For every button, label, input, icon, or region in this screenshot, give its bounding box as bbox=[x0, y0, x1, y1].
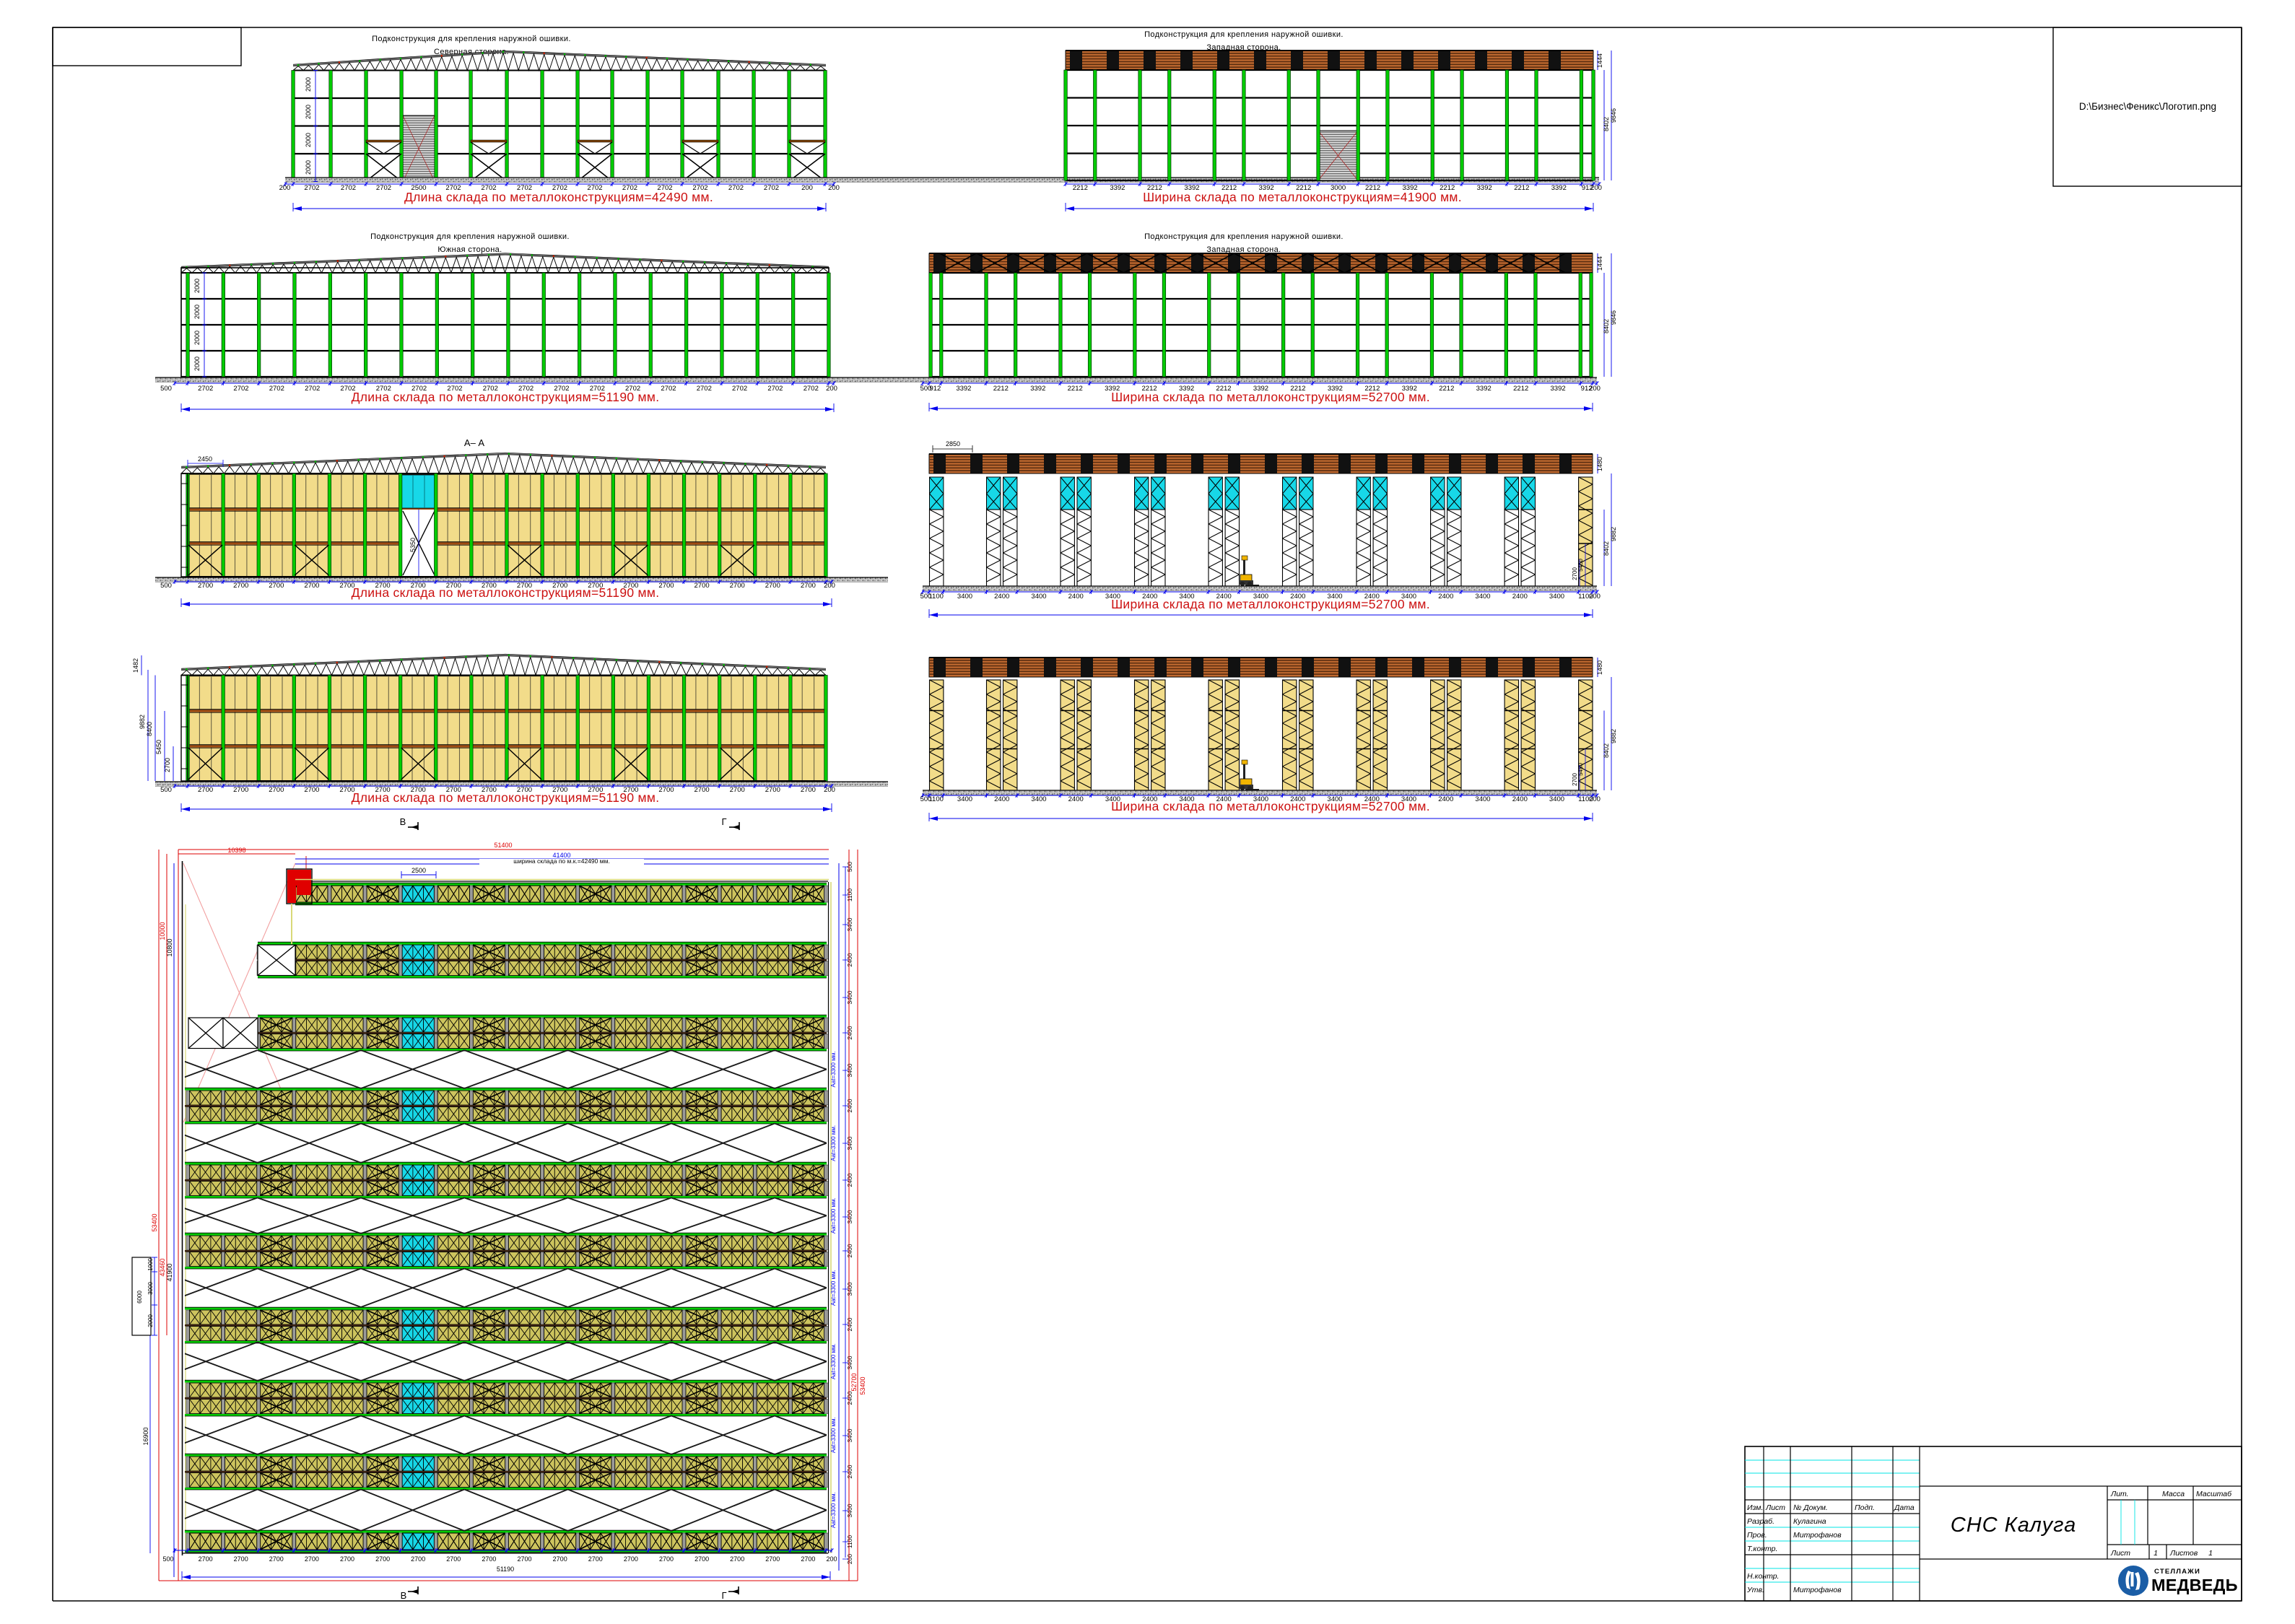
svg-text:200: 200 bbox=[828, 184, 840, 192]
svg-text:Подконструкция для крепления: Подконструкция для крепления наружной ош… bbox=[1144, 30, 1344, 39]
svg-text:2700: 2700 bbox=[199, 1555, 213, 1563]
svg-text:2700: 2700 bbox=[659, 1555, 674, 1563]
svg-text:2000: 2000 bbox=[193, 305, 201, 319]
svg-text:2700: 2700 bbox=[658, 786, 674, 794]
svg-text:2702: 2702 bbox=[198, 385, 213, 393]
svg-text:2700: 2700 bbox=[269, 1555, 284, 1563]
svg-text:43460: 43460 bbox=[159, 1258, 166, 1276]
svg-text:200: 200 bbox=[1589, 593, 1601, 601]
svg-text:2700: 2700 bbox=[694, 1555, 709, 1563]
svg-text:2702: 2702 bbox=[376, 184, 391, 192]
svg-text:МЕДВЕДЬ: МЕДВЕДЬ bbox=[2151, 1576, 2238, 1594]
svg-text:2000: 2000 bbox=[305, 133, 312, 147]
svg-text:2700: 2700 bbox=[1572, 773, 1578, 786]
svg-text:3400: 3400 bbox=[1549, 593, 1564, 601]
svg-text:200: 200 bbox=[1589, 795, 1601, 803]
svg-text:9846: 9846 bbox=[1610, 108, 1617, 123]
svg-text:1: 1 bbox=[2208, 1549, 2213, 1558]
svg-text:6000: 6000 bbox=[136, 1291, 143, 1304]
svg-text:2700: 2700 bbox=[801, 786, 816, 794]
svg-text:2700: 2700 bbox=[730, 582, 745, 590]
svg-text:3400: 3400 bbox=[1031, 593, 1046, 601]
svg-text:Масса: Масса bbox=[2162, 1490, 2185, 1498]
svg-text:Дата: Дата bbox=[1894, 1503, 1915, 1512]
svg-text:2700: 2700 bbox=[694, 582, 710, 590]
svg-text:2702: 2702 bbox=[304, 184, 319, 192]
svg-text:1480: 1480 bbox=[1596, 457, 1603, 471]
svg-text:2700: 2700 bbox=[233, 786, 248, 794]
svg-text:16900: 16900 bbox=[142, 1427, 149, 1445]
svg-text:9846: 9846 bbox=[1610, 310, 1617, 325]
svg-text:СНС Калуга: СНС Калуга bbox=[1951, 1514, 2076, 1537]
svg-text:200: 200 bbox=[826, 385, 837, 393]
svg-text:2700: 2700 bbox=[375, 1555, 390, 1563]
svg-text:Длина склада по металлоконс: Длина склада по металлоконструкциям=5119… bbox=[352, 390, 660, 404]
svg-text:3400: 3400 bbox=[1475, 593, 1490, 601]
svg-text:2702: 2702 bbox=[732, 385, 747, 393]
svg-text:2212: 2212 bbox=[1439, 385, 1454, 393]
svg-text:1480: 1480 bbox=[1596, 660, 1603, 675]
svg-text:1444: 1444 bbox=[1596, 256, 1603, 271]
svg-text:2212: 2212 bbox=[993, 385, 1009, 393]
svg-text:Ширина склада по металлокон: Ширина склада по металлоконструкциям=527… bbox=[1111, 799, 1430, 813]
svg-text:8402: 8402 bbox=[1603, 743, 1610, 758]
svg-text:Лит.: Лит. bbox=[2110, 1490, 2129, 1498]
svg-text:2702: 2702 bbox=[305, 385, 320, 393]
svg-text:2212: 2212 bbox=[1068, 385, 1083, 393]
svg-text:2702: 2702 bbox=[767, 385, 783, 393]
svg-text:3400: 3400 bbox=[1475, 795, 1490, 803]
svg-text:10000: 10000 bbox=[159, 922, 166, 940]
svg-text:2000: 2000 bbox=[193, 279, 201, 293]
svg-text:Южная сторона.: Южная сторона. bbox=[437, 245, 502, 254]
svg-text:2000: 2000 bbox=[305, 105, 312, 119]
svg-text:8402: 8402 bbox=[1603, 117, 1610, 131]
svg-text:Ширина склада по металлокон: Ширина склада по металлоконструкциям=419… bbox=[1143, 190, 1462, 204]
svg-text:3400: 3400 bbox=[957, 593, 972, 601]
svg-text:41900: 41900 bbox=[166, 1263, 173, 1281]
svg-text:2700: 2700 bbox=[765, 582, 780, 590]
svg-text:2702: 2702 bbox=[341, 184, 356, 192]
svg-text:2400: 2400 bbox=[1438, 795, 1453, 803]
svg-text:1: 1 bbox=[2154, 1549, 2158, 1558]
svg-text:3000: 3000 bbox=[147, 1282, 154, 1295]
svg-text:Пров.: Пров. bbox=[1747, 1531, 1767, 1540]
svg-text:2700: 2700 bbox=[658, 582, 674, 590]
svg-text:2700: 2700 bbox=[446, 1555, 461, 1563]
svg-text:5450: 5450 bbox=[1577, 763, 1584, 776]
svg-text:500: 500 bbox=[160, 385, 172, 393]
svg-text:200: 200 bbox=[824, 582, 835, 590]
svg-text:Разраб.: Разраб. bbox=[1747, 1517, 1774, 1526]
svg-text:2700: 2700 bbox=[553, 1555, 567, 1563]
svg-text:2700: 2700 bbox=[517, 1555, 531, 1563]
svg-text:1100: 1100 bbox=[928, 593, 943, 601]
svg-text:51190: 51190 bbox=[497, 1566, 514, 1573]
svg-text:912: 912 bbox=[929, 385, 941, 393]
svg-text:1444: 1444 bbox=[1596, 53, 1603, 68]
svg-text:3400: 3400 bbox=[957, 795, 972, 803]
svg-text:2400: 2400 bbox=[1438, 593, 1453, 601]
svg-text:Г: Г bbox=[721, 816, 726, 827]
svg-text:51400: 51400 bbox=[494, 842, 512, 849]
svg-text:200: 200 bbox=[279, 184, 291, 192]
svg-text:Аat=3300 мм.: Аat=3300 мм. bbox=[830, 1270, 837, 1306]
svg-text:2000: 2000 bbox=[305, 77, 312, 92]
svg-text:3392: 3392 bbox=[1551, 184, 1567, 192]
svg-text:53400: 53400 bbox=[859, 1376, 866, 1394]
svg-text:8402: 8402 bbox=[1603, 319, 1610, 333]
svg-text:Подп.: Подп. bbox=[1855, 1503, 1875, 1512]
svg-text:2702: 2702 bbox=[728, 184, 744, 192]
svg-text:Н.контр.: Н.контр. bbox=[1747, 1572, 1779, 1581]
svg-text:Аat=3300 мм.: Аat=3300 мм. bbox=[830, 1197, 837, 1234]
svg-text:2700: 2700 bbox=[765, 1555, 780, 1563]
svg-text:2700: 2700 bbox=[198, 582, 213, 590]
svg-text:Ширина склада по металлокон: Ширина склада по металлоконструкциям=527… bbox=[1111, 597, 1430, 611]
svg-text:2212: 2212 bbox=[1073, 184, 1088, 192]
svg-text:2212: 2212 bbox=[1514, 184, 1529, 192]
svg-text:10800: 10800 bbox=[166, 938, 173, 956]
svg-text:2700: 2700 bbox=[234, 1555, 248, 1563]
svg-text:3392: 3392 bbox=[956, 385, 971, 393]
svg-text:8400: 8400 bbox=[146, 722, 153, 736]
svg-text:2700: 2700 bbox=[588, 1555, 603, 1563]
svg-text:5450: 5450 bbox=[1577, 559, 1584, 572]
svg-text:2700: 2700 bbox=[765, 786, 780, 794]
svg-text:Подконструкция для крепления: Подконструкция для крепления наружной ош… bbox=[372, 35, 571, 43]
svg-text:1000: 1000 bbox=[147, 1258, 154, 1271]
svg-text:3400: 3400 bbox=[1549, 795, 1564, 803]
svg-text:Лист: Лист bbox=[1765, 1503, 1785, 1512]
svg-text:2000: 2000 bbox=[305, 160, 312, 175]
svg-text:2700: 2700 bbox=[305, 1555, 319, 1563]
svg-text:2000: 2000 bbox=[193, 357, 201, 371]
svg-text:2702: 2702 bbox=[269, 385, 284, 393]
svg-text:Т.контр.: Т.контр. bbox=[1747, 1545, 1777, 1553]
svg-text:Кулагина: Кулагина bbox=[1793, 1517, 1826, 1526]
svg-text:Аat=3300 мм.: Аat=3300 мм. bbox=[830, 1492, 837, 1528]
svg-text:3392: 3392 bbox=[1476, 385, 1491, 393]
svg-text:3392: 3392 bbox=[1477, 184, 1492, 192]
svg-text:Листов: Листов bbox=[2169, 1549, 2198, 1558]
svg-text:8402: 8402 bbox=[1603, 541, 1610, 556]
svg-text:2700: 2700 bbox=[624, 1555, 638, 1563]
svg-text:2400: 2400 bbox=[1068, 593, 1084, 601]
svg-text:2700: 2700 bbox=[340, 1555, 354, 1563]
svg-text:Г: Г bbox=[721, 1590, 726, 1601]
svg-text:2400: 2400 bbox=[1512, 795, 1528, 803]
svg-text:Митрофанов: Митрофанов bbox=[1793, 1531, 1842, 1540]
svg-text:Аat=3300 мм.: Аat=3300 мм. bbox=[830, 1343, 837, 1379]
svg-text:200: 200 bbox=[1589, 385, 1601, 393]
svg-text:9882: 9882 bbox=[139, 715, 146, 729]
svg-text:2700: 2700 bbox=[482, 1555, 496, 1563]
svg-text:№ Докум.: № Докум. bbox=[1793, 1503, 1828, 1512]
svg-text:2700: 2700 bbox=[730, 1555, 744, 1563]
svg-text:500: 500 bbox=[160, 786, 172, 794]
svg-text:В: В bbox=[400, 816, 406, 827]
svg-text:10398: 10398 bbox=[227, 847, 245, 854]
svg-text:А– А: А– А bbox=[464, 437, 485, 448]
svg-text:1100: 1100 bbox=[928, 795, 943, 803]
svg-text:9882: 9882 bbox=[1610, 527, 1617, 541]
svg-text:2700: 2700 bbox=[304, 582, 319, 590]
svg-text:2700: 2700 bbox=[164, 758, 171, 772]
svg-text:2700: 2700 bbox=[304, 786, 319, 794]
svg-text:2400: 2400 bbox=[994, 593, 1009, 601]
svg-text:Масштаб: Масштаб bbox=[2196, 1490, 2232, 1498]
svg-text:В: В bbox=[401, 1590, 407, 1601]
svg-text:2700: 2700 bbox=[233, 582, 248, 590]
svg-text:Подконструкция для крепления: Подконструкция для крепления наружной ош… bbox=[1144, 232, 1344, 241]
svg-text:Митрофанов: Митрофанов bbox=[1793, 1586, 1842, 1594]
svg-text:2702: 2702 bbox=[697, 385, 712, 393]
svg-text:2700: 2700 bbox=[198, 786, 213, 794]
svg-text:3392: 3392 bbox=[1110, 184, 1125, 192]
svg-text:Длина склада по металлоконс: Длина склада по металлоконструкциям=4249… bbox=[404, 190, 713, 204]
svg-text:Подконструкция для крепления: Подконструкция для крепления наружной ош… bbox=[370, 232, 570, 241]
svg-text:2700: 2700 bbox=[269, 582, 284, 590]
svg-text:2700: 2700 bbox=[269, 786, 284, 794]
svg-text:2850: 2850 bbox=[946, 440, 960, 448]
svg-text:Ширина склада по металлокон: Ширина склада по металлоконструкциям=527… bbox=[1111, 390, 1430, 404]
svg-text:500: 500 bbox=[160, 582, 172, 590]
svg-text:2450: 2450 bbox=[198, 455, 212, 463]
svg-text:200: 200 bbox=[801, 184, 813, 192]
svg-text:3392: 3392 bbox=[1551, 385, 1566, 393]
svg-text:2400: 2400 bbox=[1512, 593, 1528, 601]
svg-text:1482: 1482 bbox=[132, 658, 139, 673]
svg-text:2400: 2400 bbox=[1068, 795, 1084, 803]
svg-text:2700: 2700 bbox=[694, 786, 710, 794]
svg-text:Длина склада по металлоконс: Длина склада по металлоконструкциям=5119… bbox=[352, 585, 660, 600]
svg-text:9882: 9882 bbox=[1610, 729, 1617, 743]
svg-text:Лист: Лист bbox=[2110, 1549, 2130, 1558]
svg-text:2702: 2702 bbox=[233, 385, 248, 393]
svg-text:2212: 2212 bbox=[1513, 385, 1528, 393]
svg-text:2500: 2500 bbox=[411, 867, 426, 874]
svg-text:2400: 2400 bbox=[994, 795, 1009, 803]
svg-text:200: 200 bbox=[826, 1555, 837, 1563]
svg-text:3392: 3392 bbox=[1030, 385, 1045, 393]
svg-text:2000: 2000 bbox=[193, 331, 201, 345]
svg-text:200: 200 bbox=[1590, 184, 1602, 192]
svg-text:3400: 3400 bbox=[1031, 795, 1046, 803]
svg-text:Изм.: Изм. bbox=[1747, 1503, 1763, 1512]
svg-text:2700: 2700 bbox=[801, 582, 816, 590]
svg-text:2700: 2700 bbox=[1572, 567, 1578, 580]
svg-text:2702: 2702 bbox=[804, 385, 819, 393]
svg-text:200: 200 bbox=[824, 786, 835, 794]
svg-text:52700: 52700 bbox=[850, 1373, 858, 1391]
svg-text:D:\Бизнес\Феникс\Логотип.png: D:\Бизнес\Феникс\Логотип.png bbox=[2079, 101, 2216, 112]
svg-text:2700: 2700 bbox=[411, 1555, 425, 1563]
svg-text:53400: 53400 bbox=[151, 1213, 158, 1231]
svg-text:Аat=3300 мм.: Аat=3300 мм. bbox=[830, 1052, 837, 1088]
svg-text:2000: 2000 bbox=[147, 1314, 154, 1327]
svg-text:500: 500 bbox=[162, 1555, 173, 1563]
svg-text:Длина склада по металлоконс: Длина склада по металлоконструкциям=5119… bbox=[352, 790, 660, 805]
svg-text:5350: 5350 bbox=[409, 538, 417, 552]
svg-text:СТЕЛЛАЖИ: СТЕЛЛАЖИ bbox=[2154, 1568, 2200, 1576]
svg-text:2700: 2700 bbox=[730, 786, 745, 794]
svg-text:Аat=3300 мм.: Аat=3300 мм. bbox=[830, 1417, 837, 1453]
svg-text:Утв.: Утв. bbox=[1746, 1586, 1764, 1594]
svg-text:2702: 2702 bbox=[764, 184, 779, 192]
svg-text:2700: 2700 bbox=[801, 1555, 815, 1563]
svg-text:2702: 2702 bbox=[661, 385, 676, 393]
svg-text:5450: 5450 bbox=[155, 740, 162, 754]
svg-text:ширина склада по м.к.=42490: ширина склада по м.к.=42490 мм. bbox=[513, 857, 610, 865]
svg-text:Аat=3300 мм.: Аat=3300 мм. bbox=[830, 1125, 837, 1161]
